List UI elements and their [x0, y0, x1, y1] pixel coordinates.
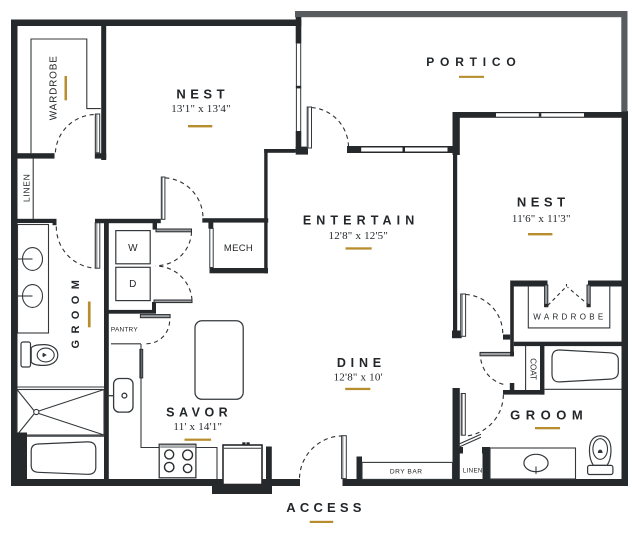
svg-text:GROOM: GROOM	[510, 408, 588, 423]
svg-text:ACCESS: ACCESS	[286, 500, 365, 515]
svg-text:12'8" x 10': 12'8" x 10'	[334, 372, 383, 384]
svg-text:NEST: NEST	[176, 87, 229, 102]
svg-text:GROOM: GROOM	[70, 274, 82, 349]
svg-text:DRY BAR: DRY BAR	[390, 469, 423, 476]
svg-text:W: W	[128, 243, 138, 254]
svg-text:PORTICO: PORTICO	[426, 55, 521, 69]
svg-text:NEST: NEST	[517, 195, 570, 210]
svg-text:12'8" x 12'5": 12'8" x 12'5"	[329, 230, 389, 242]
svg-text:LINEN: LINEN	[21, 174, 31, 203]
svg-text:WARDROBE: WARDROBE	[48, 55, 59, 120]
svg-text:SAVOR: SAVOR	[166, 406, 232, 420]
svg-text:11'6" x 11'3": 11'6" x 11'3"	[512, 213, 571, 225]
svg-text:D: D	[129, 279, 136, 290]
svg-text:ENTERTAIN: ENTERTAIN	[303, 214, 420, 228]
svg-text:DINE: DINE	[337, 356, 386, 370]
svg-text:MECH: MECH	[224, 243, 253, 254]
svg-text:COAT: COAT	[529, 358, 538, 380]
svg-text:WARDROBE: WARDROBE	[533, 312, 606, 321]
svg-text:11' x 14'1": 11' x 14'1"	[173, 421, 222, 433]
svg-text:PANTRY: PANTRY	[111, 327, 138, 334]
svg-text:13'1" x 13'4": 13'1" x 13'4"	[171, 103, 231, 115]
svg-text:LINEN: LINEN	[463, 468, 483, 475]
